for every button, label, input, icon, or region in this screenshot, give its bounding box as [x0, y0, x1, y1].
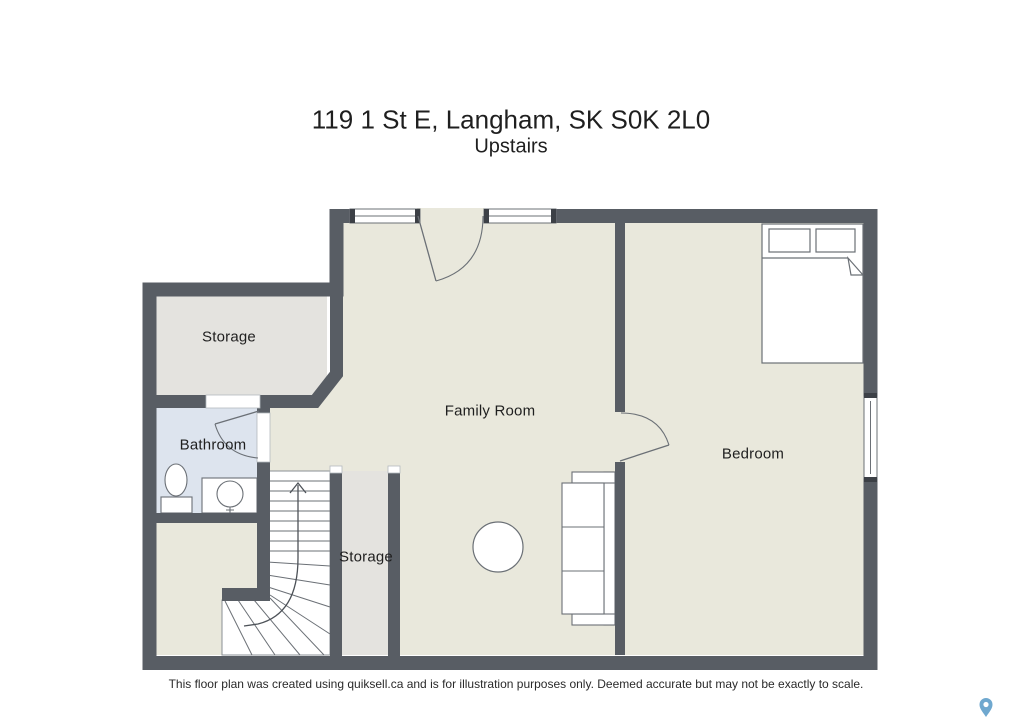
toilet-bowl — [165, 464, 187, 496]
storage-upper-floor — [156, 296, 327, 395]
entry-door-opening — [417, 208, 484, 224]
map-pin-icon — [980, 698, 993, 717]
sofa-cushions — [562, 483, 604, 614]
sofa-armrest-bottom — [572, 614, 615, 625]
sofa-back — [604, 472, 615, 625]
toilet-tank — [161, 497, 192, 513]
sink-basin — [217, 481, 243, 507]
bathroom-door-opening — [206, 395, 260, 408]
floor-plan-drawing — [0, 0, 1019, 720]
room-label-storage-stairs: Storage — [339, 549, 393, 566]
room-label-bedroom: Bedroom — [722, 446, 784, 463]
pillow-left — [769, 229, 810, 252]
room-label-storage-upper: Storage — [202, 329, 256, 346]
window-bedroom-east — [864, 393, 877, 482]
bathroom-side-opening — [257, 413, 270, 462]
bed — [762, 224, 863, 363]
window-top-right — [484, 209, 556, 223]
disclaimer-text: This floor plan was created using quikse… — [169, 677, 864, 691]
round-table — [473, 522, 523, 572]
stair-opening-threshold-right — [388, 466, 400, 473]
sofa — [562, 472, 615, 625]
window-top-left — [350, 209, 420, 223]
room-label-bathroom: Bathroom — [180, 437, 247, 454]
stair-opening-threshold-left — [330, 466, 342, 473]
pillow-right — [816, 229, 855, 252]
sofa-armrest-top — [572, 472, 615, 483]
floor-plan-page: 119 1 St E, Langham, SK S0K 2L0 Upstairs — [0, 0, 1019, 720]
sink-vanity — [202, 478, 257, 514]
room-label-family-room: Family Room — [445, 403, 536, 420]
